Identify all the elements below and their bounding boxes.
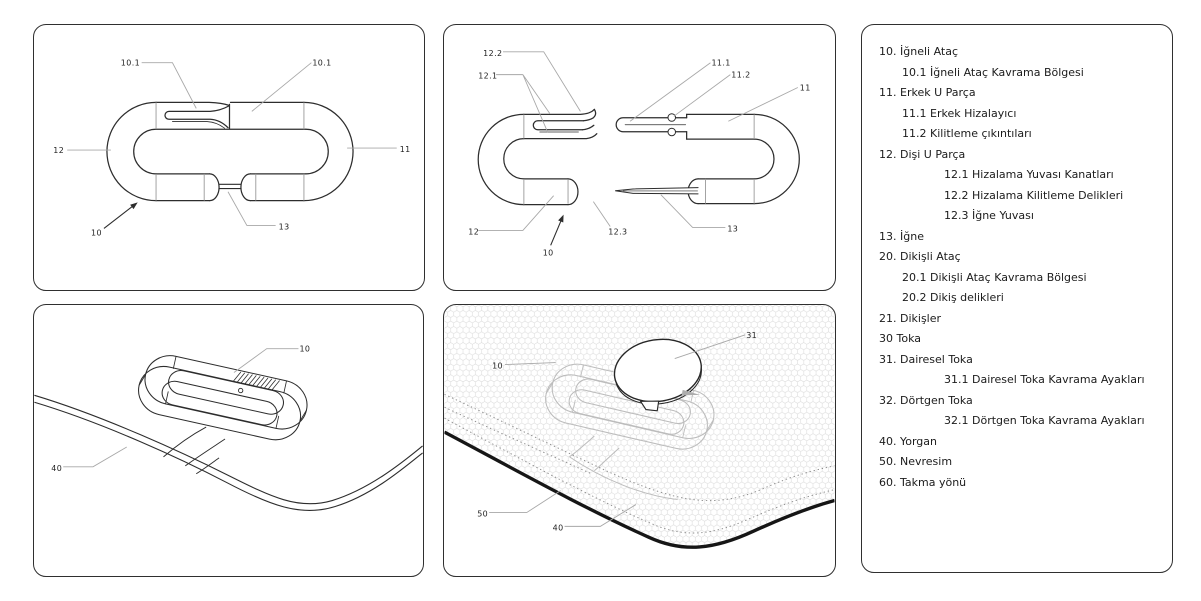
locking-protrusion-bottom	[668, 128, 676, 136]
buckle-on-duvet-figure: 31 10 50 40	[444, 305, 835, 576]
direction-arrow	[551, 215, 564, 246]
ref-label: 13	[279, 222, 290, 231]
direction-arrow	[104, 202, 138, 228]
exploded-clip-figure: 12.2 12.1 11.1 11.2 11 12 12.3 10 13	[444, 25, 835, 290]
legend-item: 20. Dikişli Ataç	[862, 247, 1172, 268]
clip-on-quilt-figure: 10 40	[34, 305, 423, 576]
legend-item: 32.1 Dörtgen Toka Kavrama Ayakları	[862, 411, 1172, 432]
legend-item: 40. Yorgan	[862, 432, 1172, 453]
legend-item: 12.1 Hizalama Yuvası Kanatları	[862, 165, 1172, 186]
legend-item: 21. Dikişler	[862, 309, 1172, 330]
assembled-clip-figure: 10.1 10.1 12 11 10 13	[34, 25, 424, 290]
locking-protrusion-top	[668, 114, 676, 122]
legend-item: 31.1 Dairesel Toka Kavrama Ayakları	[862, 370, 1172, 391]
ref-label: 12	[468, 227, 479, 236]
ref-label: 10	[91, 228, 102, 237]
legend-item: 10. İğneli Ataç	[862, 42, 1172, 63]
needle-socket	[568, 179, 578, 205]
ref-label: 11.2	[731, 71, 750, 80]
ref-label: 12.1	[478, 72, 497, 81]
legend-item: 12.2 Hizalama Kilitleme Delikleri	[862, 186, 1172, 207]
legend-panel: 10. İğneli Ataç10.1 İğneli Ataç Kavrama …	[861, 24, 1173, 573]
leader-lines	[67, 63, 397, 226]
clip-3d	[134, 350, 312, 446]
ref-label: 11	[800, 84, 811, 93]
legend-item: 12.3 İğne Yuvası	[862, 206, 1172, 227]
figure-panel-buckle-on-duvet: 31 10 50 40	[443, 304, 836, 577]
legend-item: 11.1 Erkek Hizalayıcı	[862, 104, 1172, 125]
legend-item: 10.1 İğneli Ataç Kavrama Bölgesi	[862, 63, 1172, 84]
ref-label: 40	[51, 464, 62, 473]
legend-item: 13. İğne	[862, 227, 1172, 248]
alignment-slot	[533, 121, 583, 130]
ref-label: 12.3	[608, 227, 627, 236]
quilt-edge	[34, 395, 422, 510]
ref-label: 12.2	[483, 49, 502, 58]
legend-item: 12. Dişi U Parça	[862, 145, 1172, 166]
ref-label: 40	[553, 523, 564, 532]
ref-label: 13	[727, 224, 738, 233]
ref-label: 10.1	[121, 59, 140, 68]
clip-outline	[107, 102, 353, 200]
figure-panel-clip-on-quilt: 10 40	[33, 304, 424, 577]
legend-item: 20.2 Dikiş delikleri	[862, 288, 1172, 309]
female-u-part	[478, 109, 597, 204]
ref-label: 10	[492, 362, 503, 371]
figure-panel-assembled-clip: 10.1 10.1 12 11 10 13	[33, 24, 425, 291]
ref-label: 31	[746, 331, 757, 340]
duvet-surface	[444, 305, 834, 547]
legend-item: 20.1 Dikişli Ataç Kavrama Bölgesi	[862, 268, 1172, 289]
legend-item: 11.2 Kilitleme çıkıntıları	[862, 124, 1172, 145]
ref-label: 10	[543, 248, 554, 257]
legend-list: 10. İğneli Ataç10.1 İğneli Ataç Kavrama …	[862, 42, 1172, 493]
patent-figure-sheet: { "legend": { "items": [ { "text": "10. …	[0, 0, 1201, 601]
legend-item: 30 Toka	[862, 329, 1172, 350]
legend-item: 50. Nevresim	[862, 452, 1172, 473]
legend-item: 60. Takma yönü	[862, 473, 1172, 494]
ref-label: 11.1	[711, 59, 730, 68]
ref-label: 10	[299, 345, 310, 354]
legend-item: 31. Dairesel Toka	[862, 350, 1172, 371]
ref-label: 10.1	[312, 59, 331, 68]
ref-label: 12	[53, 146, 64, 155]
ref-label: 50	[477, 509, 488, 518]
legend-item: 11. Erkek U Parça	[862, 83, 1172, 104]
ref-label: 11	[400, 145, 411, 154]
figure-panel-exploded-clip: 12.2 12.1 11.1 11.2 11 12 12.3 10 13	[443, 24, 836, 291]
needle-pin	[219, 184, 241, 188]
male-u-part	[615, 114, 799, 204]
legend-item: 32. Dörtgen Toka	[862, 391, 1172, 412]
